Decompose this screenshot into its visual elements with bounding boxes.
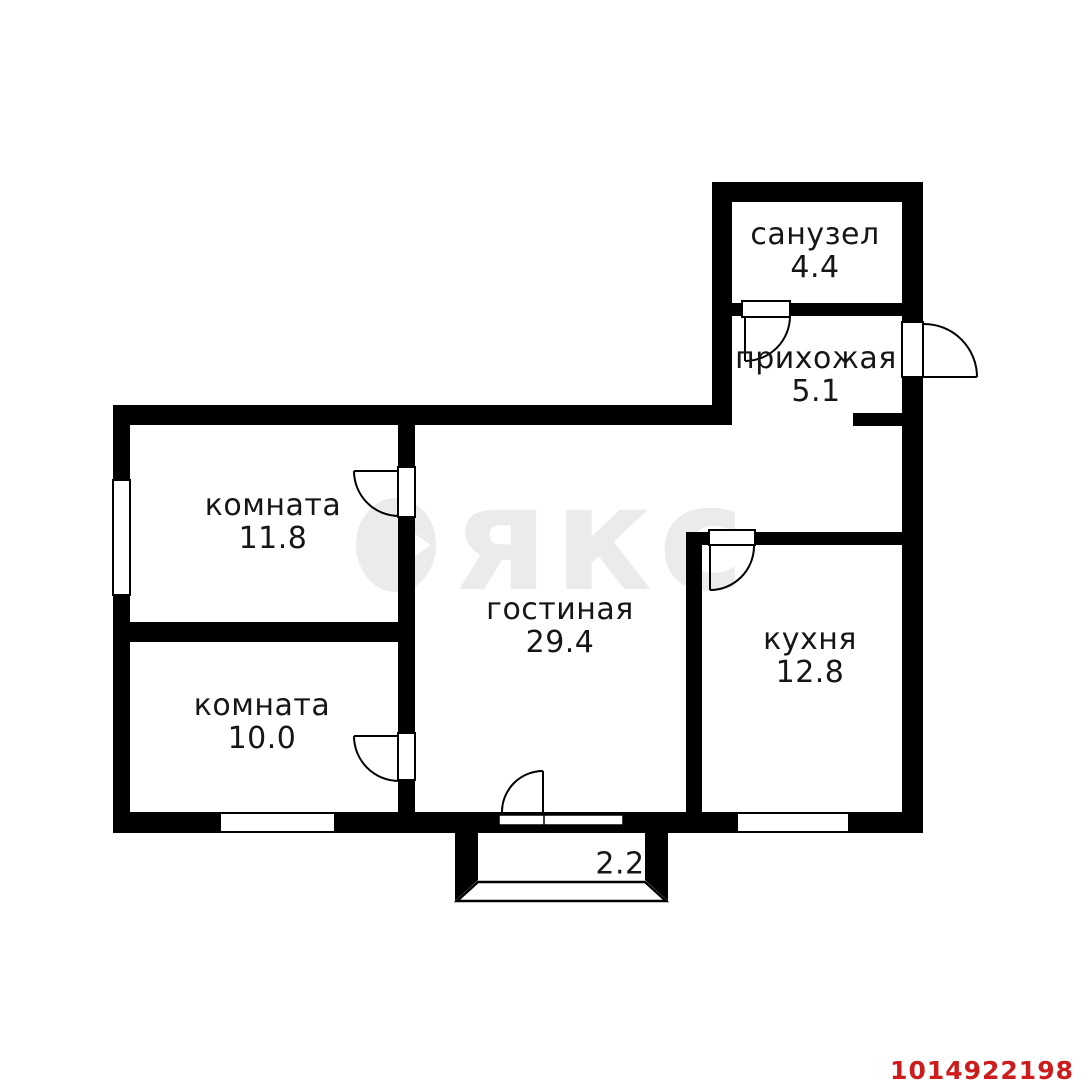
wall-main-top: [113, 405, 730, 425]
wall-bottom-1: [113, 812, 220, 833]
wall-block-top: [712, 182, 923, 202]
room-area: 12.8: [763, 656, 857, 689]
listing-id: 1014922198: [890, 1056, 1074, 1085]
room-label-room-10-0: комната 10.0: [194, 689, 330, 755]
wall-divider-upper: [398, 405, 415, 467]
wall-hall-stub: [853, 413, 902, 426]
door-leaf-entrance: [902, 322, 923, 377]
room-area: 10.0: [194, 722, 330, 755]
door-arc-entrance: [924, 324, 977, 377]
floorplan-drawing: якс: [0, 0, 1091, 1089]
wall-right-lower: [902, 377, 923, 833]
room-label-room-11-8: комната 11.8: [205, 489, 341, 555]
wall-divider-lower: [398, 780, 415, 812]
wall-kitchen-top-left: [686, 532, 709, 545]
door-arc-room-10-0: [354, 736, 399, 781]
balcony-area-label: 2.2: [595, 848, 644, 881]
wall-rooms-divider: [113, 622, 415, 642]
door-arc-balcony: [502, 771, 543, 812]
room-area: 2.2: [595, 848, 644, 881]
room-label-bathroom: санузел 4.4: [750, 218, 879, 284]
balcony-door-window-band: [499, 815, 623, 825]
wall-kitchen-top-right: [755, 532, 902, 545]
door-leaf-room-11-8: [398, 467, 415, 517]
door-leaf-bathroom: [742, 301, 790, 317]
room-name: комната: [205, 489, 341, 522]
wall-bottom-3: [849, 812, 923, 833]
room-name: прихожая: [735, 342, 897, 375]
room-name: кухня: [763, 623, 857, 656]
wall-kitchen-left: [686, 532, 702, 812]
balcony-railing: [457, 882, 666, 901]
room-name: санузел: [750, 218, 879, 251]
room-label-kitchen: кухня 12.8: [763, 623, 857, 689]
room-name: гостиная: [486, 593, 634, 626]
window-room-11-8: [113, 480, 130, 595]
room-area: 11.8: [205, 522, 341, 555]
wall-right-upper: [902, 182, 923, 322]
wall-bath-divider-left: [730, 303, 742, 316]
room-area: 4.4: [750, 251, 879, 284]
room-label-hallway: прихожая 5.1: [735, 342, 897, 408]
door-leaf-kitchen: [709, 530, 755, 545]
room-area: 5.1: [735, 375, 897, 408]
room-label-living-room: гостиная 29.4: [486, 593, 634, 659]
door-leaf-room-10-0: [398, 733, 415, 780]
room-area: 29.4: [486, 626, 634, 659]
window-kitchen: [737, 813, 849, 832]
floorplan-page: якс: [0, 0, 1091, 1089]
room-name: комната: [194, 689, 330, 722]
window-room-10-0: [220, 813, 335, 832]
wall-block-left: [712, 182, 732, 425]
wall-left-upper: [113, 405, 130, 480]
wall-bath-divider-right: [790, 303, 902, 316]
